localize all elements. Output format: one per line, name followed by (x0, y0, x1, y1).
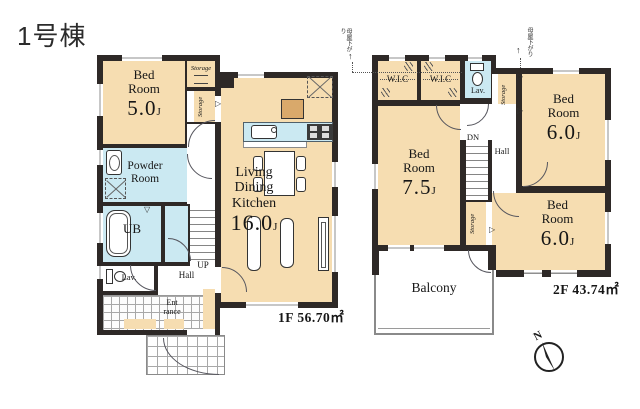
storage2-1f-label: Storage (197, 93, 211, 121)
room-size: 6.0J (505, 227, 610, 250)
faucet-icon (271, 127, 277, 133)
label-line: Kitchen (214, 196, 294, 211)
room-size: 5.0J (103, 97, 185, 120)
storage1-1f-label: Storage (187, 65, 215, 72)
toilet-bowl-2f (472, 72, 483, 86)
door-marker-icon: ▷ (489, 226, 495, 234)
compass: N (528, 330, 572, 378)
shoe-cabinet (124, 319, 156, 329)
label-line: Dining (214, 180, 294, 195)
label-line: Bed (505, 198, 610, 212)
label-line: Room (103, 173, 187, 186)
dn-label: DN (458, 133, 488, 142)
window (332, 162, 338, 187)
entrance-label: Ent rance (150, 299, 194, 317)
floor1-area-label: 1F 56.70㎡ (278, 306, 344, 326)
chair (296, 177, 306, 192)
hatch-mark (448, 88, 457, 97)
room-size: 6.0J (522, 121, 605, 144)
bedroom-top-label: Bed Room 6.0J (522, 92, 605, 144)
floor2-area-label: 2F 43.74㎡ (553, 278, 619, 298)
counter-ledge (243, 142, 307, 148)
page-title: 1号棟 (17, 16, 86, 53)
door-marker-icon: ▷ (517, 73, 523, 81)
eaves-line (352, 72, 462, 73)
label-line: Room (505, 212, 610, 226)
storage1-2f-label: Storage (500, 79, 514, 111)
ldk-label: Living Dining Kitchen 16.0J (214, 165, 294, 235)
hatch-mark (424, 62, 433, 71)
window (122, 55, 162, 61)
entrance-cabinet (203, 289, 215, 329)
room-size: 16.0J (214, 211, 294, 235)
stairs-down (466, 140, 488, 200)
eaves-line (352, 62, 353, 72)
storage-door (187, 91, 194, 122)
label-line: Bed (103, 68, 185, 82)
door-marker-icon: ▷ (517, 107, 523, 115)
bedroom-bottom-label: Bed Room 6.0J (505, 198, 610, 250)
up-arrow-icon: ↑ (348, 52, 353, 61)
up-label: UP (188, 261, 218, 271)
door-marker-icon: ▷ (215, 100, 221, 108)
eaves-line (520, 58, 521, 68)
floorplan-page: 1号棟 (0, 0, 640, 409)
label-line: Room (103, 82, 185, 96)
room-size: 7.5J (378, 176, 460, 199)
storage2-2f-label: Storage (469, 207, 483, 241)
eaves-note-right: 母屋下がり (526, 27, 532, 57)
label-line: Powder (103, 160, 187, 173)
window (468, 55, 482, 61)
label-line: Bed (378, 147, 460, 161)
window (332, 216, 338, 272)
label-line: Living (214, 165, 294, 180)
wall (372, 245, 379, 275)
window (553, 68, 579, 74)
label-line: Bed (522, 92, 605, 106)
window (524, 270, 542, 277)
stove (307, 124, 333, 140)
refrigerator-space (307, 76, 333, 98)
toilet-tank-2f (470, 63, 484, 71)
tv-board-line (321, 222, 326, 268)
lav-1f-label: Lav. (112, 273, 146, 282)
wic1-label: W.I.C (378, 75, 417, 85)
label-line: Room (378, 161, 460, 175)
tv-board (318, 217, 329, 271)
lav-2f-label: Lav. (464, 87, 492, 96)
bedroom-left-label: Bed Room 7.5J (378, 147, 460, 199)
powder-label: Powder Room (103, 160, 187, 185)
hatch-mark (404, 62, 413, 71)
cupboard (281, 99, 304, 119)
window (605, 120, 611, 160)
door-opening (215, 267, 221, 293)
label-line: Room (522, 106, 605, 120)
ub-label: UB (103, 222, 161, 236)
hatch-mark (381, 88, 390, 97)
door-marker-icon: ▽ (144, 206, 150, 214)
window (429, 55, 445, 61)
window (551, 270, 577, 277)
hall-2f-label: Hall (486, 147, 518, 156)
bedroom-1f-label: Bed Room 5.0J (103, 68, 185, 120)
balcony-rail-line (378, 328, 490, 329)
window (389, 55, 405, 61)
wall (215, 78, 234, 88)
wic2-label: W.I.C (421, 75, 460, 85)
stairs-up (190, 204, 215, 262)
shelf-symbol (194, 75, 208, 84)
up-arrow-icon: ↑ (516, 46, 521, 55)
shoe-cabinet (164, 319, 184, 329)
label-line: rance (150, 308, 194, 317)
hall-1f-label: Hall (158, 271, 215, 281)
chair (296, 156, 306, 171)
window (97, 266, 103, 279)
window (238, 72, 264, 78)
balcony-label: Balcony (374, 281, 494, 296)
